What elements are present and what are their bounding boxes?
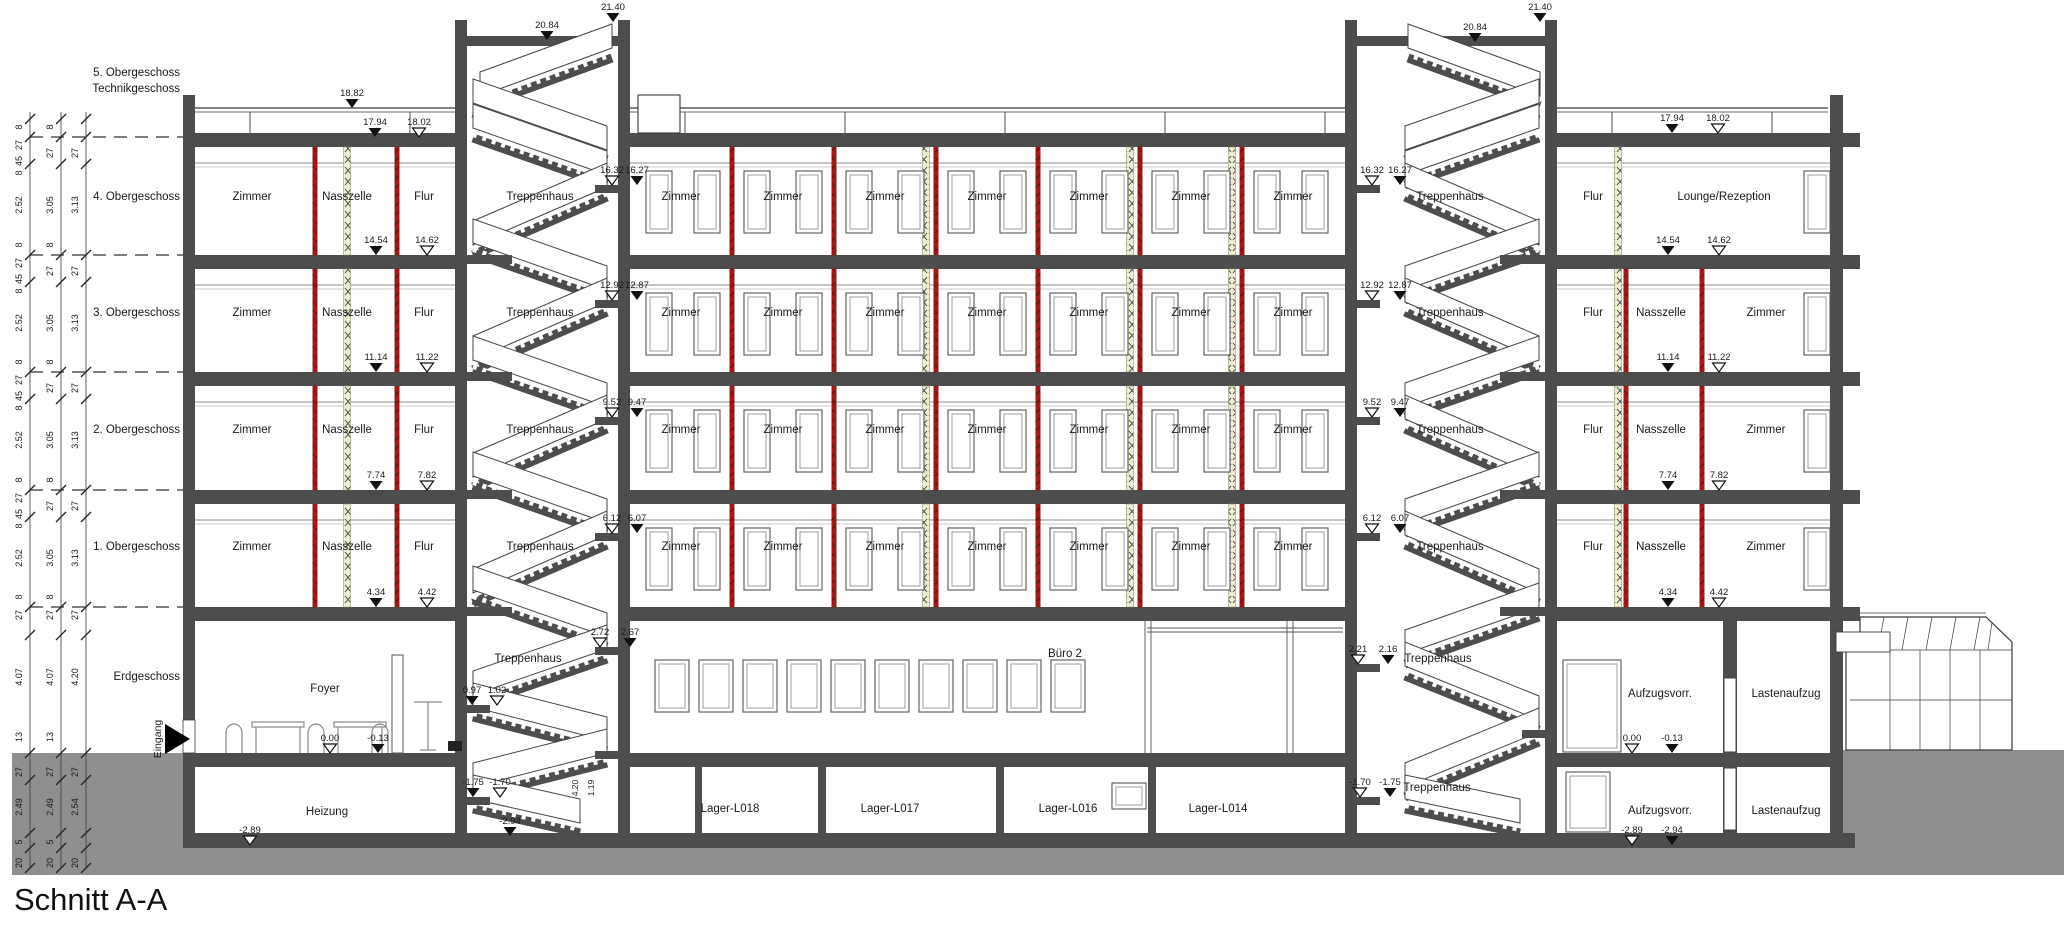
fire-wall-line (934, 269, 938, 372)
elevation-value: 14.54 (1656, 235, 1680, 246)
shaft-wall-line (1615, 386, 1622, 490)
dimension-value: 5 (14, 839, 24, 844)
wall (630, 607, 1345, 621)
dimension-value: 4.07 (45, 668, 55, 686)
elevation-value: -0.13 (1661, 733, 1683, 744)
stair-landing (595, 533, 618, 541)
room-label: Nasszelle (322, 541, 372, 553)
dimension-value: 8 (45, 594, 55, 599)
dimension-value: 8 (14, 124, 24, 129)
elevation-marker: 2.16 (1379, 644, 1398, 664)
roof-penthouse (638, 95, 680, 133)
room-label: Lager-L017 (861, 803, 920, 815)
elevation-marker: 4.34 (367, 587, 386, 607)
room-label: Zimmer (1070, 541, 1109, 553)
elevation-marker: -0.13 (367, 733, 389, 753)
elevation-value: 9.52 (603, 397, 622, 408)
elevation-value: -2.89 (1621, 825, 1643, 836)
elevation-marker: 14.62 (415, 235, 439, 255)
wall (1557, 255, 1830, 269)
wall (183, 833, 1855, 848)
wall (1345, 20, 1357, 848)
wall (1843, 372, 1860, 386)
fire-wall-line (730, 386, 734, 490)
elevation-marker: 21.40 (601, 2, 625, 22)
room-label: Zimmer (968, 424, 1007, 436)
wall (1557, 133, 1830, 147)
dimension-value: 27 (45, 610, 55, 620)
dimension-value: 8 (14, 288, 24, 293)
stair-landing (1357, 797, 1380, 805)
dimension-value: 27 (45, 501, 55, 511)
door-frame (1566, 772, 1610, 832)
elevation-value: 2.21 (1349, 644, 1368, 655)
elevation-value: 7.74 (1659, 470, 1678, 481)
room-label: Flur (1583, 191, 1603, 203)
elevation-marker: 11.22 (415, 352, 438, 372)
elevation-value: 17.94 (363, 117, 387, 128)
door-frame (699, 660, 733, 712)
elevation-value: 0.00 (321, 733, 340, 744)
elevation-marker: 12.92 (1360, 280, 1384, 300)
elevation-value: 7.82 (418, 470, 437, 481)
elevation-value: 11.14 (364, 352, 387, 363)
dimension-value: 27 (70, 501, 80, 511)
fire-wall-line (1138, 147, 1142, 255)
dimension-value: 27 (70, 383, 80, 393)
dimension-value: 2.54 (70, 798, 80, 816)
room-label: Treppenhaus (506, 307, 574, 319)
door-frame (1563, 660, 1621, 752)
dimension-value: 2.49 (45, 798, 55, 816)
fire-wall-line (832, 386, 836, 490)
foyer-column (392, 655, 403, 753)
elevation-value: 18.02 (1706, 113, 1730, 124)
shaft-wall-line (1615, 504, 1622, 607)
dimension-value: 2.52 (14, 196, 24, 214)
fire-wall-line (832, 504, 836, 607)
room-label: Zimmer (1070, 191, 1109, 203)
fire-wall-line (1624, 504, 1628, 607)
shaft-wall-line (344, 504, 351, 607)
fire-wall-line (1138, 386, 1142, 490)
door-frame (1051, 660, 1085, 712)
elevation-value: 6.07 (1391, 513, 1410, 524)
room-label: Zimmer (1172, 541, 1211, 553)
elevation-marker: 6.12 (1363, 513, 1382, 533)
dimension-value: 2.52 (14, 314, 24, 332)
elevator-door (1724, 768, 1736, 830)
dimension-value: 8 (14, 594, 24, 599)
room-label: Aufzugsvorr. (1628, 688, 1692, 700)
room-label: Zimmer (233, 541, 272, 553)
fire-wall-line (395, 269, 399, 372)
elevation-value: 21.40 (1528, 2, 1552, 13)
wall (818, 767, 826, 833)
door-frame (787, 660, 821, 712)
room-label: Zimmer (662, 307, 701, 319)
wall (1557, 372, 1830, 386)
elevation-marker: 16.32 (1360, 165, 1384, 185)
room-label: Flur (414, 424, 434, 436)
elevation-value: 14.62 (415, 235, 439, 246)
room-label: Zimmer (866, 541, 905, 553)
dimension-value: 8 (14, 170, 24, 175)
door-frame (831, 660, 865, 712)
dimension-value: 8 (14, 523, 24, 528)
elevation-marker: 11.14 (364, 352, 387, 372)
ground-fill (12, 753, 183, 875)
elevation-marker: 17.94 (1660, 113, 1684, 133)
dimension-value: 8 (14, 359, 24, 364)
room-label: Lager-L016 (1039, 803, 1098, 815)
elevation-value: 6.12 (603, 513, 622, 524)
elevation-marker: 4.42 (1710, 587, 1729, 607)
dimension-value: 27 (70, 610, 80, 620)
fire-wall-line (1240, 147, 1244, 255)
stair-landing (595, 647, 618, 655)
stair-landing (1522, 730, 1545, 738)
room-label: Zimmer (764, 424, 803, 436)
ground-fill (183, 848, 1855, 875)
elevation-value: 1.02 (488, 685, 507, 696)
dimension-value: 8 (14, 405, 24, 410)
fire-wall-line (1138, 504, 1142, 607)
elevation-value: 7.74 (367, 470, 386, 481)
dimension-value: 20 (70, 858, 80, 868)
dimension-value: 45 (14, 391, 24, 401)
wall (996, 767, 1004, 833)
wall (455, 20, 467, 848)
fire-wall-line (1700, 269, 1704, 372)
dimension-value: 27 (70, 767, 80, 777)
dimension-value: 2.52 (14, 549, 24, 567)
fire-wall-line (1700, 504, 1704, 607)
fire-wall-line (730, 269, 734, 372)
fire-wall-line (1036, 269, 1040, 372)
elevation-value: 12.92 (1360, 280, 1384, 291)
room-label: Zimmer (1070, 424, 1109, 436)
dimension-value: 3.13 (70, 549, 80, 567)
fire-wall-line (395, 147, 399, 255)
elevation-value: 11.22 (415, 352, 438, 363)
room-label: Zimmer (968, 541, 1007, 553)
elevation-marker: 9.52 (1363, 397, 1382, 417)
room-label: Zimmer (968, 191, 1007, 203)
dimension-value: 20 (14, 858, 24, 868)
dimension-value: 3.13 (70, 196, 80, 214)
elevation-value: 4.34 (1659, 587, 1678, 598)
storey-label: Technikgeschoss (92, 83, 180, 95)
elevation-value: 2.72 (591, 627, 610, 638)
elevation-value: -2.89 (239, 825, 261, 836)
elevation-value: 20.84 (1463, 22, 1487, 33)
elevation-value: -1.75 (462, 777, 484, 788)
stair-landing (595, 751, 618, 759)
room-label: Nasszelle (1636, 424, 1686, 436)
room-label: Foyer (310, 683, 340, 695)
dimension-value: 27 (45, 266, 55, 276)
fire-wall-line (934, 504, 938, 607)
elevation-marker: 18.82 (340, 88, 364, 108)
elevation-value: 18.02 (407, 117, 431, 128)
stair-landing (1357, 185, 1380, 193)
door-frame (963, 660, 997, 712)
storey-label: 3. Obergeschoss (93, 307, 180, 319)
room-label: Treppenhaus (1416, 424, 1484, 436)
wall (630, 255, 1345, 269)
elevation-marker: 4.34 (1659, 587, 1678, 607)
fire-wall-line (934, 147, 938, 255)
room-label: Zimmer (233, 424, 272, 436)
room-label: Zimmer (233, 307, 272, 319)
wall (195, 607, 455, 621)
room-label: Zimmer (764, 191, 803, 203)
wall (618, 20, 630, 848)
elevation-value: 20.84 (535, 20, 559, 31)
elevation-marker: 7.74 (367, 470, 386, 490)
elevation-value: 0.97 (463, 685, 482, 696)
wall (1557, 490, 1830, 504)
dimension-value: 1.19 (586, 779, 596, 796)
room-label: Zimmer (1172, 424, 1211, 436)
dimension-value: 3.05 (45, 196, 55, 214)
room-label: Zimmer (1747, 424, 1786, 436)
elevation-value: -2.94 (499, 816, 521, 827)
fire-wall-line (1240, 269, 1244, 372)
fire-wall-line (832, 147, 836, 255)
wall (195, 133, 455, 147)
dimension-value: 27 (45, 148, 55, 158)
dimension-value: 5 (45, 839, 55, 844)
dimension-value: 13 (45, 732, 55, 742)
stair-flight (1405, 511, 1539, 603)
room-label: Flur (414, 541, 434, 553)
elevation-value: 16.32 (600, 165, 624, 176)
room-label: Flur (1583, 541, 1603, 553)
room-label: Treppenhaus (494, 653, 562, 665)
elevation-value: 14.62 (1707, 235, 1731, 246)
room-label: Zimmer (662, 191, 701, 203)
room-label: Treppenhaus (1416, 191, 1484, 203)
storey-label: 1. Obergeschoss (93, 541, 180, 553)
fire-wall-line (730, 504, 734, 607)
stair-landing (595, 417, 618, 425)
elevation-value: 6.12 (1363, 513, 1382, 524)
elevation-marker: 4.42 (418, 587, 437, 607)
fire-wall-line (730, 147, 734, 255)
room-label: Lager-L014 (1189, 803, 1248, 815)
wall (1545, 20, 1557, 848)
dimension-value: 3.05 (45, 314, 55, 332)
elevation-marker: -0.13 (1661, 733, 1683, 753)
elevation-value: 6.07 (628, 513, 647, 524)
elevation-value: 2.67 (621, 627, 640, 638)
dimension-value: 20 (45, 858, 55, 868)
fire-wall-line (313, 386, 317, 490)
fire-wall-line (1036, 147, 1040, 255)
room-label: Nasszelle (322, 424, 372, 436)
elevation-value: 14.54 (364, 235, 388, 246)
fire-wall-line (1240, 386, 1244, 490)
room-label: Zimmer (1747, 307, 1786, 319)
elevation-marker: 9.47 (628, 397, 647, 417)
dimension-value: 8 (45, 242, 55, 247)
wall (1830, 95, 1843, 848)
wall (195, 255, 455, 269)
wall (630, 372, 1345, 386)
stair-landing (1357, 300, 1380, 308)
dimension-value: 3.13 (70, 314, 80, 332)
dimension-value: 4.07 (14, 668, 24, 686)
stair-landing (595, 300, 618, 308)
room-label: Zimmer (764, 541, 803, 553)
shaft-wall-line (1615, 147, 1622, 255)
room-label: Treppenhaus (1403, 782, 1471, 794)
wall (695, 767, 702, 833)
room-label: Flur (414, 191, 434, 203)
door-frame (919, 660, 953, 712)
elevation-marker: 7.82 (418, 470, 437, 490)
stair-landing (467, 797, 490, 805)
elevation-value: 4.42 (418, 587, 437, 598)
stair-landing (1357, 533, 1380, 541)
dimension-value: 45 (14, 156, 24, 166)
dimension-value: 2.52 (14, 431, 24, 449)
wall (630, 753, 1345, 767)
fire-wall-line (1624, 386, 1628, 490)
elevation-value: 4.42 (1710, 587, 1729, 598)
room-label: Treppenhaus (506, 424, 574, 436)
storey-label: 4. Obergeschoss (93, 191, 180, 203)
room-label: Zimmer (233, 191, 272, 203)
entrance-label: Eingang (152, 720, 164, 759)
dimension-value: 8 (45, 477, 55, 482)
room-label: Zimmer (1274, 541, 1313, 553)
elevation-value: -0.13 (367, 733, 389, 744)
elevation-marker: 7.74 (1659, 470, 1678, 490)
dimension-value: 27 (70, 148, 80, 158)
room-label: Zimmer (866, 424, 905, 436)
room-label: Nasszelle (322, 307, 372, 319)
room-label: Treppenhaus (506, 191, 574, 203)
dimension-value: 27 (14, 140, 24, 150)
fire-wall-line (1700, 386, 1704, 490)
elevation-marker: 14.62 (1707, 235, 1731, 255)
door-frame (743, 660, 777, 712)
wall (1843, 133, 1860, 147)
elevation-value: 18.82 (340, 88, 364, 99)
section-drawing-page: 21.4020.8421.4020.8418.8217.9418.0217.94… (0, 0, 2064, 928)
room-label: Nasszelle (322, 191, 372, 203)
room-label: Zimmer (968, 307, 1007, 319)
wall (1843, 255, 1860, 269)
elevation-value: 12.87 (1388, 280, 1412, 291)
ground-fill (1843, 750, 2064, 875)
room-label: Zimmer (1070, 307, 1109, 319)
room-label: Zimmer (764, 307, 803, 319)
dimension-value: 27 (14, 610, 24, 620)
dimension-value: 8 (45, 124, 55, 129)
fire-wall-line (313, 504, 317, 607)
glass-annex (1836, 613, 2012, 750)
shaft-wall-line (1615, 269, 1622, 372)
building-section-canvas: 21.4020.8421.4020.8418.8217.9418.0217.94… (0, 0, 2064, 928)
stair-landing (595, 185, 618, 193)
wall (183, 753, 455, 767)
stair-landing (1357, 417, 1380, 425)
elevation-marker: 7.82 (1710, 470, 1729, 490)
room-label: Flur (414, 307, 434, 319)
room-label: Treppenhaus (1416, 541, 1484, 553)
door-frame (875, 660, 909, 712)
elevator-door (1724, 678, 1736, 752)
elevation-value: 9.47 (628, 397, 647, 408)
elevation-marker: -1.75 (1379, 777, 1401, 797)
elevation-marker: 11.14 (1656, 352, 1679, 372)
shaft-wall-line (344, 269, 351, 372)
room-label: Zimmer (662, 541, 701, 553)
room-label: Aufzugsvorr. (1628, 805, 1692, 817)
elevation-value: -1.70 (489, 777, 511, 788)
wall (1148, 767, 1156, 833)
room-label: Lounge/Rezeption (1677, 191, 1770, 203)
elevation-value: 16.27 (1388, 165, 1412, 176)
elevation-value: -1.70 (1349, 777, 1371, 788)
stair-landing (467, 705, 490, 713)
dimension-value: 45 (14, 509, 24, 519)
dimension-value: 13 (14, 732, 24, 742)
room-label: Heizung (306, 806, 348, 818)
elevation-marker: 14.54 (1656, 235, 1680, 255)
elevation-value: 11.14 (1656, 352, 1679, 363)
wall (1843, 607, 1860, 621)
fire-wall-line (1240, 504, 1244, 607)
fire-wall-line (395, 504, 399, 607)
elevation-value: 17.94 (1660, 113, 1684, 124)
fire-wall-line (395, 386, 399, 490)
room-label: Treppenhaus (1404, 653, 1472, 665)
room-label: Büro 2 (1048, 648, 1082, 660)
fire-wall-line (934, 386, 938, 490)
wall (1557, 607, 1830, 621)
elevation-value: 0.00 (1623, 733, 1642, 744)
wall (195, 372, 455, 386)
elevation-value: 9.47 (1391, 397, 1410, 408)
dimension-value: 27 (14, 767, 24, 777)
storey-label: Erdgeschoss (114, 671, 181, 683)
room-label: Treppenhaus (1416, 307, 1484, 319)
room-label: Lager-L018 (701, 803, 760, 815)
room-label: Zimmer (1274, 191, 1313, 203)
room-label: Zimmer (662, 424, 701, 436)
elevation-value: -1.75 (1379, 777, 1401, 788)
elevation-value: 11.22 (1707, 352, 1730, 363)
room-label: Treppenhaus (506, 541, 574, 553)
dimension-value: 27 (14, 375, 24, 385)
shaft-wall-line (344, 386, 351, 490)
stair-landing (1357, 664, 1380, 672)
room-label: Zimmer (1274, 424, 1313, 436)
elevation-value: 16.27 (625, 165, 649, 176)
dimension-value: 3.05 (45, 549, 55, 567)
dimension-value: 4.20 (70, 668, 80, 686)
door-frame (655, 660, 689, 712)
elevation-marker: 0.00 (1623, 733, 1642, 753)
fire-wall-line (1138, 269, 1142, 372)
dimension-value: 27 (45, 767, 55, 777)
elevation-value: 9.52 (1363, 397, 1382, 408)
